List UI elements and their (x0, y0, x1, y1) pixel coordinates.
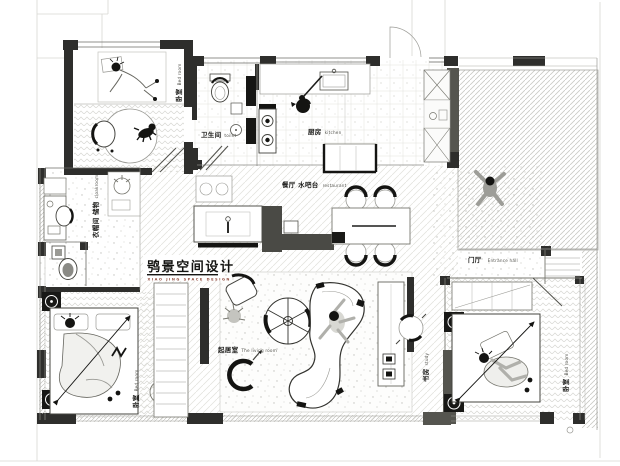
label-entrance-en: Entrance hall (488, 258, 518, 263)
logo-block: 鸮景空间设计 XIAO JING SPACE DESIGN (143, 255, 235, 282)
wheel-coffee-table (265, 298, 311, 344)
bath-cabinet-1 (246, 76, 256, 106)
door-knob-mark (567, 427, 573, 433)
label-dining-en: restaurant (323, 183, 347, 188)
terrace-floor (458, 70, 598, 250)
label-dining-cn: 餐厅 水吧台 (281, 180, 319, 189)
label-study-cn: 书房 (421, 368, 430, 382)
logo-cn-text: 鸮景空间设计 (147, 259, 235, 275)
stove-edge (259, 104, 276, 109)
island-base-strip (198, 243, 258, 248)
label-bedroom-top-en: Bed room (177, 64, 182, 86)
shelf (44, 178, 66, 194)
right-strip-floor (582, 250, 598, 428)
label-bedroom-left-cn: 卧室 (131, 394, 140, 408)
kitchen-sink (320, 72, 348, 90)
label-bedroom-top-cn: 卧室 (174, 88, 183, 102)
label-kitchen-en: kitchen (325, 130, 342, 135)
label-cloakroom-en: cloakroom (94, 175, 99, 199)
kitchen-counter-top (260, 64, 370, 94)
label-bedroom-right-en: Bed room (564, 354, 569, 376)
logo-divider (147, 274, 218, 275)
bar-counter-horizontal (282, 234, 334, 250)
label-living-cn: 起居室 (217, 345, 239, 354)
bath-cabinet-2 (246, 118, 256, 144)
floor-plan-page: 卫生间toilet 厨房kitchen 餐厅 水吧台restaurant 门厅E… (0, 0, 620, 466)
bath-stool (231, 103, 242, 114)
label-bathroom-cn: 卫生间 (201, 130, 222, 139)
label-kitchen-cn: 厨房 (308, 127, 322, 136)
bar-sink-box (284, 221, 298, 233)
logo-en-text: XIAO JING SPACE DESIGN (148, 278, 231, 282)
label-entrance-cn: 门厅 (468, 255, 482, 264)
label-living-en: The living room (240, 348, 277, 353)
floor-plan-drawing: 卫生间toilet 厨房kitchen 餐厅 水吧台restaurant 门厅E… (0, 0, 620, 466)
laundry-units (196, 176, 232, 202)
label-bedroom-right-cn: 卧室 (561, 378, 570, 392)
entrance-steps (545, 258, 580, 276)
label-cloakroom-cn: 衣帽间 储物 (91, 201, 100, 238)
kitchen-peninsula (324, 144, 376, 172)
toilet-bowl (212, 82, 229, 102)
bar-counter-vertical (262, 206, 282, 252)
wardrobe-closet (154, 283, 188, 417)
label-bedroom-left-en: Bed room (134, 370, 139, 392)
shaft-boxes (424, 70, 450, 162)
label-study-en: study (424, 352, 429, 365)
dressing-chair (56, 206, 72, 226)
bedroom-bottom-left (42, 292, 138, 414)
dining-table-corner-block (332, 232, 345, 243)
label-bathroom-en: toilet (224, 133, 236, 138)
